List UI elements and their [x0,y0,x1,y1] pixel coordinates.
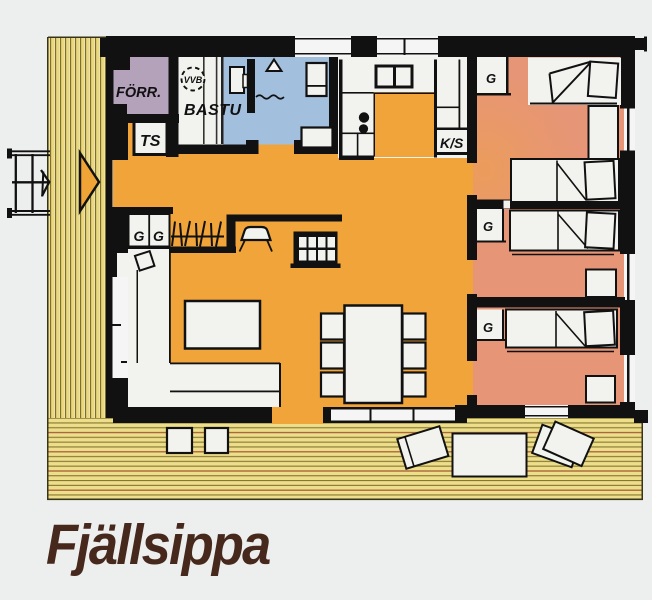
svg-text:G: G [483,320,493,335]
svg-text:BASTU: BASTU [184,102,242,119]
svg-text:TS: TS [140,133,161,150]
svg-text:G: G [153,228,164,244]
svg-text:G: G [134,228,145,244]
svg-text:FÖRR.: FÖRR. [116,84,161,101]
svg-text:VVB: VVB [184,75,203,85]
svg-text:G: G [486,71,496,86]
svg-text:Fjällsippa: Fjällsippa [46,512,270,577]
svg-text:G: G [483,219,493,234]
svg-text:K/S: K/S [440,135,464,151]
